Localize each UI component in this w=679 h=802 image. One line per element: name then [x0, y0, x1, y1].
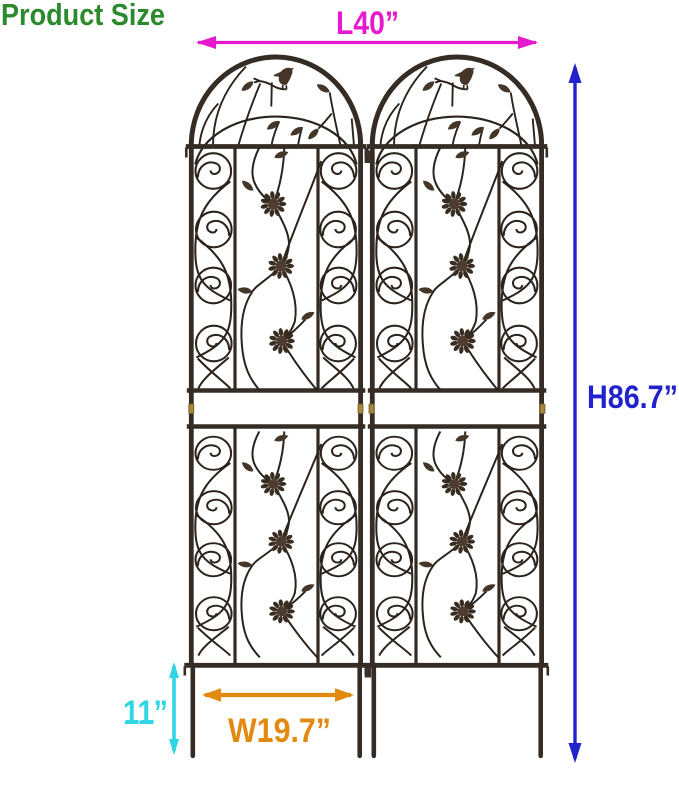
svg-text:11”: 11”	[123, 694, 168, 732]
svg-text:W19.7”: W19.7”	[228, 712, 331, 750]
svg-text:H86.7”: H86.7”	[587, 379, 678, 415]
svg-text:Product Size: Product Size	[1, 0, 165, 32]
svg-text:L40”: L40”	[336, 5, 399, 41]
